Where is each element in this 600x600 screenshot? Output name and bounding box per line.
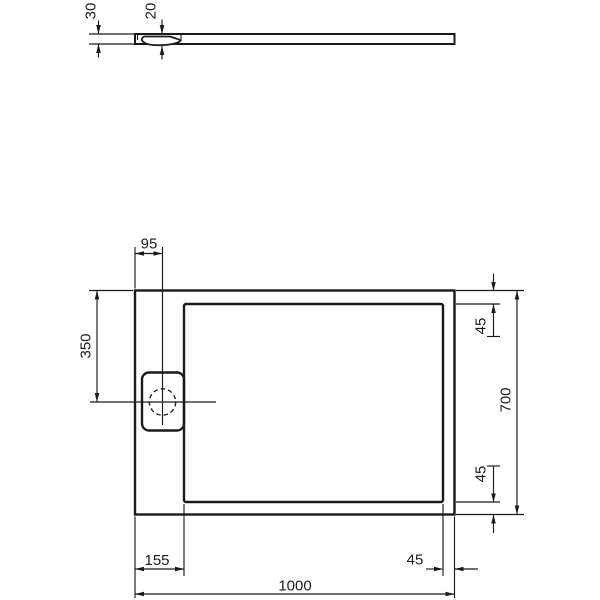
dimension-rim-top: 45 <box>456 274 500 337</box>
dimension-drain-from-left: 95 <box>135 236 163 289</box>
arrowhead-down <box>96 25 101 34</box>
dim-label-rim-left: 155 <box>144 552 169 569</box>
arrowhead-down <box>160 25 165 34</box>
arrowhead-right <box>175 567 184 572</box>
arrowhead-up <box>95 291 100 300</box>
arrowhead-up <box>491 515 496 524</box>
technical-drawing: 30 20 95 3 <box>0 0 600 600</box>
profile-waste-cover <box>142 37 180 46</box>
arrowhead-up <box>160 46 165 55</box>
dim-label-waste-recess-depth: 20 <box>143 3 160 20</box>
arrowhead-down <box>515 506 520 515</box>
dimension-waste-recess-depth: 20 <box>143 3 165 60</box>
arrowhead-right <box>446 592 455 597</box>
arrowhead-left <box>135 592 144 597</box>
drawing-canvas: 30 20 95 3 <box>0 0 600 600</box>
arrowhead-up <box>515 291 520 300</box>
arrowhead-down <box>95 393 100 402</box>
dimension-overall-depth: 700 <box>456 291 524 515</box>
arrowhead-right <box>434 567 443 572</box>
dimension-rim-left: 155 <box>135 504 184 598</box>
dim-label-drain-from-top: 350 <box>78 333 95 358</box>
dim-label-rim-bottom: 45 <box>473 466 490 483</box>
tray-inner-edge <box>184 304 443 502</box>
dimension-rim-bottom: 45 <box>456 466 500 533</box>
dim-label-drain-from-left: 95 <box>141 236 158 253</box>
dim-label-overall-width: 1000 <box>278 578 311 595</box>
arrowhead-up <box>491 304 496 313</box>
dim-label-rim-right: 45 <box>407 552 424 569</box>
arrowhead-up <box>96 44 101 53</box>
dim-label-overall-depth: 700 <box>498 387 515 412</box>
arrowhead-left <box>135 567 144 572</box>
dimension-overall-width: 1000 <box>135 578 455 597</box>
arrowhead-left <box>455 567 464 572</box>
side-profile-view: 30 20 <box>83 3 455 60</box>
plan-view: 95 350 45 700 <box>78 236 525 599</box>
dimension-drain-from-top: 350 <box>78 291 134 403</box>
arrowhead-down <box>491 282 496 291</box>
profile-body <box>135 34 455 44</box>
dim-label-rim-top: 45 <box>473 318 490 335</box>
arrowhead-down <box>491 494 496 503</box>
dimension-profile-height: 30 <box>83 3 136 58</box>
dim-label-profile-height: 30 <box>83 3 100 20</box>
dimension-rim-right: 45 <box>407 504 478 598</box>
